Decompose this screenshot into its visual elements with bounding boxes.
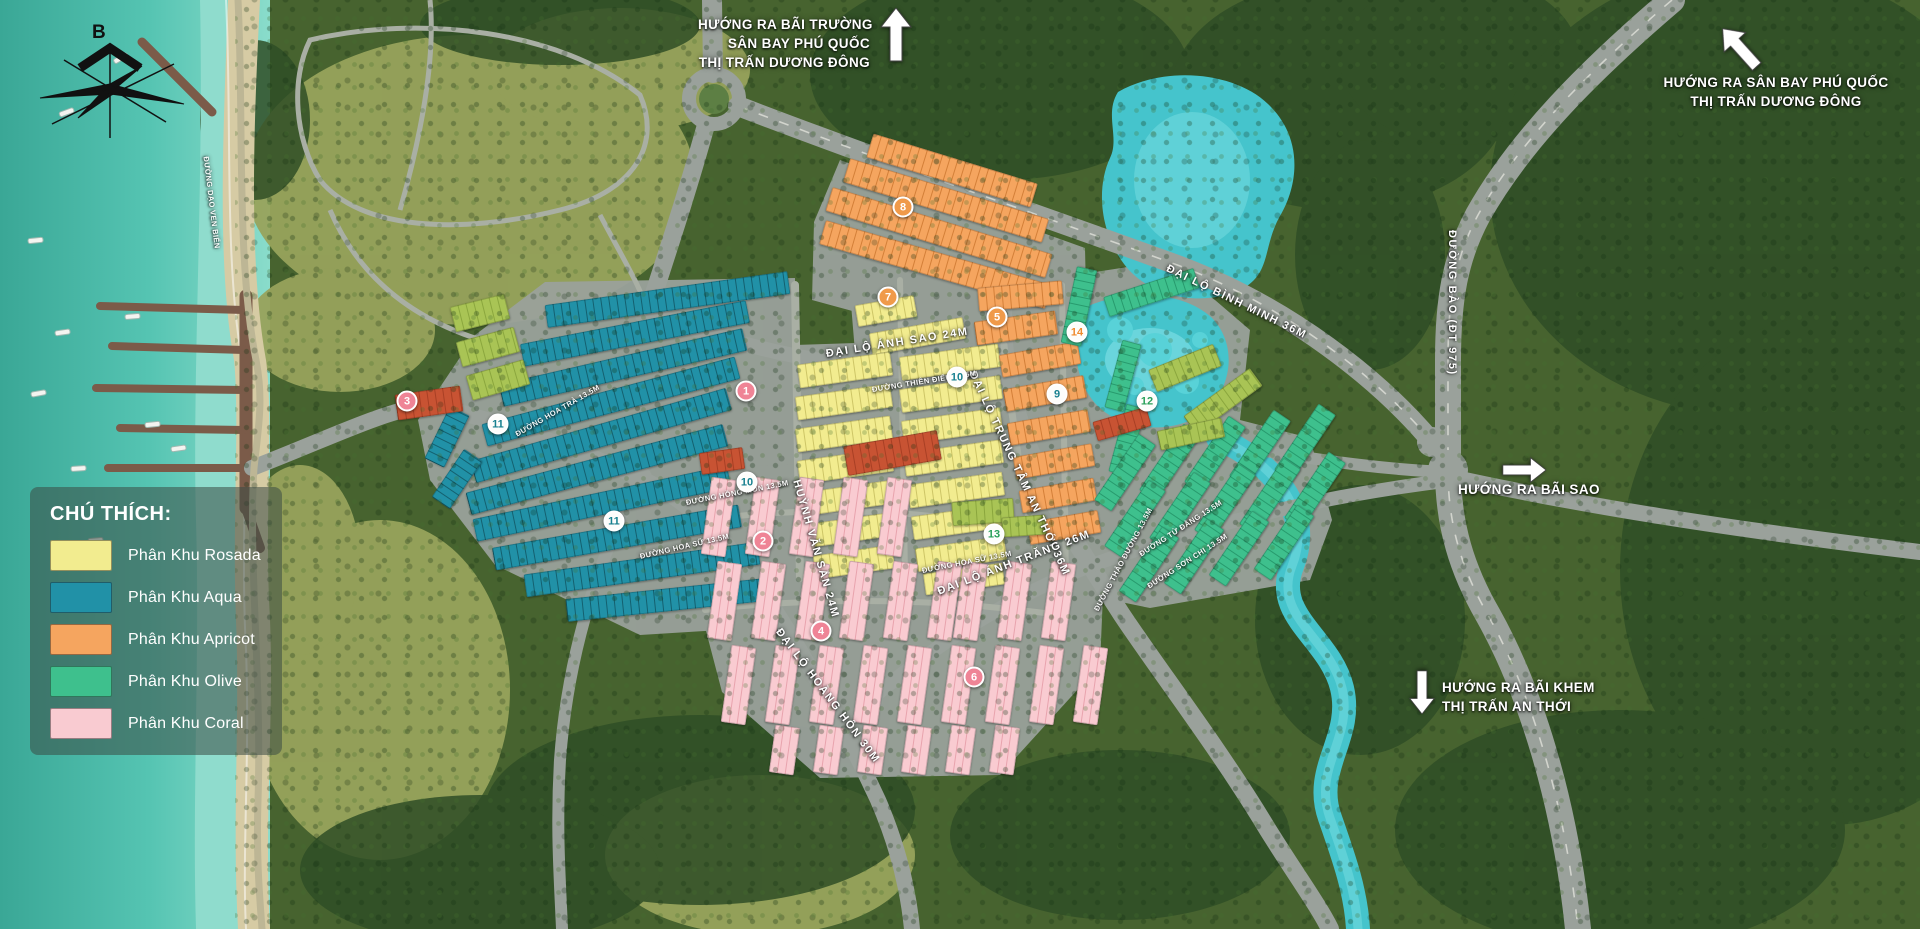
arrow-down-icon bbox=[1408, 670, 1436, 714]
map-marker-2[interactable]: 2 bbox=[753, 531, 774, 552]
sign-line: THỊ TRẤN DƯƠNG ĐÔNG bbox=[698, 54, 870, 73]
legend-item-rosada: Phân Khu Rosada bbox=[50, 540, 262, 571]
legend-swatch-rosada bbox=[50, 540, 112, 571]
sign-line: HƯỚNG RA BÃI TRƯỜNG bbox=[698, 16, 870, 35]
map-marker-13[interactable]: 13 bbox=[984, 524, 1005, 545]
legend-swatch-apricot bbox=[50, 624, 112, 655]
map-marker-1[interactable]: 1 bbox=[736, 381, 757, 402]
sign-line: THỊ TRẤN DƯƠNG ĐÔNG bbox=[1648, 93, 1904, 112]
sign-line: SÂN BAY PHÚ QUỐC bbox=[698, 35, 870, 54]
sign-bai-truong: HƯỚNG RA BÃI TRƯỜNG SÂN BAY PHÚ QUỐC THỊ… bbox=[698, 16, 870, 73]
map-marker-5[interactable]: 5 bbox=[987, 307, 1008, 328]
map-marker-11[interactable]: 11 bbox=[604, 511, 625, 532]
map-marker-14[interactable]: 14 bbox=[1067, 322, 1088, 343]
map-marker-12[interactable]: 12 bbox=[1137, 391, 1158, 412]
arrow-up-icon bbox=[880, 8, 912, 62]
compass-north-label: B bbox=[92, 22, 106, 44]
map-marker-10[interactable]: 10 bbox=[737, 472, 758, 493]
legend-swatch-olive bbox=[50, 666, 112, 697]
map-marker-8[interactable]: 8 bbox=[893, 197, 914, 218]
sign-san-bay: HƯỚNG RA SÂN BAY PHÚ QUỐC THỊ TRẤN DƯƠNG… bbox=[1648, 74, 1904, 112]
legend-item-olive: Phân Khu Olive bbox=[50, 666, 262, 697]
legend-item-aqua: Phân Khu Aqua bbox=[50, 582, 262, 613]
legend-label: Phân Khu Apricot bbox=[128, 631, 255, 649]
legend-label: Phân Khu Coral bbox=[128, 715, 244, 733]
legend-title: CHÚ THÍCH: bbox=[50, 503, 262, 526]
sign-line: HƯỚNG RA BÃI KHEM bbox=[1442, 679, 1595, 698]
arrow-right-icon bbox=[1502, 456, 1546, 484]
legend-swatch-aqua bbox=[50, 582, 112, 613]
sign-line: HƯỚNG RA SÂN BAY PHÚ QUỐC bbox=[1648, 74, 1904, 93]
map-marker-10[interactable]: 10 bbox=[947, 367, 968, 388]
road-label: ĐƯỜNG BÀO (ĐT 975) bbox=[1446, 230, 1458, 376]
map-marker-7[interactable]: 7 bbox=[878, 287, 899, 308]
legend-label: Phân Khu Rosada bbox=[128, 547, 261, 565]
legend-item-apricot: Phân Khu Apricot bbox=[50, 624, 262, 655]
master-plan-map: ĐẠI LỘ ÁNH SAO 24MĐẠI LỘ BÌNH MINH 36MĐẠ… bbox=[0, 0, 1920, 929]
legend-item-coral: Phân Khu Coral bbox=[50, 708, 262, 739]
map-marker-4[interactable]: 4 bbox=[811, 621, 832, 642]
map-marker-9[interactable]: 9 bbox=[1047, 384, 1068, 405]
map-marker-6[interactable]: 6 bbox=[964, 667, 985, 688]
sign-bai-khem: HƯỚNG RA BÃI KHEM THỊ TRẤN AN THỚI bbox=[1442, 679, 1595, 717]
map-marker-3[interactable]: 3 bbox=[397, 391, 418, 412]
legend-swatch-coral bbox=[50, 708, 112, 739]
legend-panel: CHÚ THÍCH: Phân Khu Rosada Phân Khu Aqua… bbox=[30, 487, 282, 755]
map-marker-11[interactable]: 11 bbox=[488, 414, 509, 435]
compass: B bbox=[34, 26, 190, 144]
legend-label: Phân Khu Aqua bbox=[128, 589, 242, 607]
sign-line: THỊ TRẤN AN THỚI bbox=[1442, 698, 1595, 717]
compass-rose-icon bbox=[34, 26, 190, 144]
legend-label: Phân Khu Olive bbox=[128, 673, 242, 691]
